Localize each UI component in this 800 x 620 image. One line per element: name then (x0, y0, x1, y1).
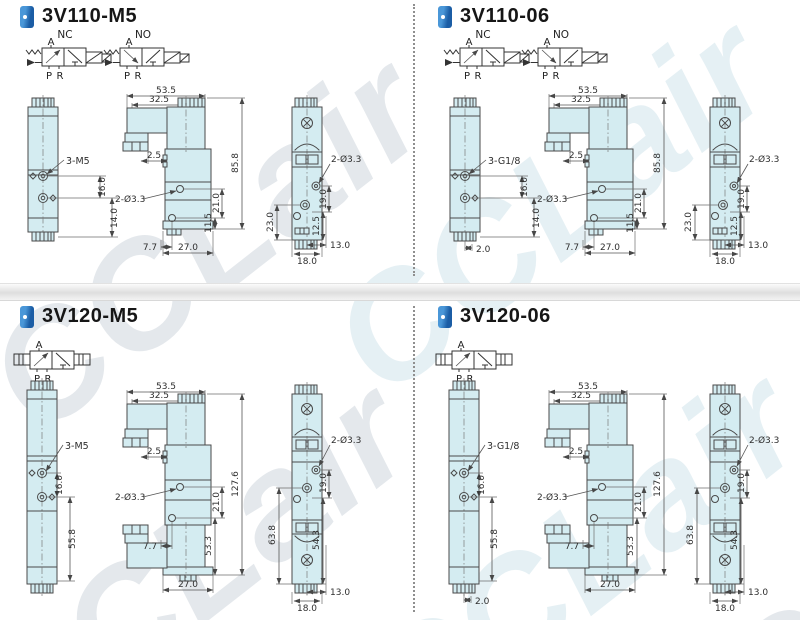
dim-hole-x: 7.7 (143, 243, 157, 253)
dimension-drawing: 3-G1/8 16.0 14.0 2.0 53.5 32.5 2.5 2-Ø3.… (418, 0, 800, 283)
dim-width-inner: 32.5 (149, 391, 169, 401)
dim-width-inner: 32.5 (571, 95, 591, 105)
dim-body-width: 27.0 (178, 580, 198, 590)
dim-side-bottom: 23.0 (684, 212, 694, 232)
dim-hole-bottom: 53.3 (626, 536, 636, 556)
dim-hole-spacing: 21.0 (634, 492, 644, 512)
side-view: 53.5 32.5 2.5 2-Ø3.3 7.7 27.0 127.6 21.0… (115, 382, 245, 593)
side-view: 53.5 32.5 2.5 2-Ø3.3 7.7 27.0 85.8 21.0 … (115, 86, 245, 256)
side-view: 53.5 32.5 2.5 2-Ø3.3 7.7 27.0 127.6 21.0… (537, 382, 667, 593)
dim-port-bottom: 55.8 (490, 529, 500, 549)
dim-height-total: 85.8 (653, 153, 663, 173)
holes-label: 2-Ø3.3 (749, 154, 779, 165)
datasheet-page: CCLair CCLair CCLair CCLair CCLair (0, 0, 800, 620)
end-view: 2-Ø3.3 23.0 19.0 12.5 13.0 18.0 (266, 95, 361, 267)
dim-height-total: 127.6 (653, 471, 663, 497)
dim-side-bottom: 63.8 (686, 525, 696, 545)
quadrant-3v110-06: 3V110-06 NC A P R NO A P R 3-G1/8 16.0 1… (418, 0, 800, 283)
dimension-drawing: 3-G1/8 16.0 55.8 2.0 53.5 32.5 2.5 2-Ø3.… (418, 300, 800, 620)
holes-label: 2-Ø3.3 (537, 492, 567, 503)
dim-port-bottom: 14.0 (110, 208, 120, 228)
front-view: 3-M5 16.0 55.8 (27, 378, 89, 596)
dim-hole-x: 7.7 (565, 243, 579, 253)
dim-hole-x: 7.7 (143, 542, 157, 552)
dim-side-spacing: 19.0 (319, 473, 329, 493)
thread-label: 3-G1/8 (487, 441, 519, 452)
front-view: 3-M5 16.0 14.0 (28, 95, 120, 241)
dim-side-spacing: 19.0 (737, 189, 747, 209)
dim-side-lower: 12.5 (312, 216, 322, 236)
holes-label: 2-Ø3.3 (331, 435, 361, 446)
dim-side-x: 13.0 (330, 588, 350, 598)
dim-side-spacing: 19.0 (737, 473, 747, 493)
holes-label: 2-Ø3.3 (115, 492, 145, 503)
dim-side-lower: 54.3 (312, 530, 322, 550)
thread-label: 3-M5 (65, 441, 89, 452)
side-view: 53.5 32.5 2.5 2-Ø3.3 7.7 27.0 85.8 21.0 … (537, 86, 667, 256)
thread-label: 3-M5 (66, 156, 90, 167)
dim-hole-bottom: 53.3 (204, 536, 214, 556)
dim-base-offset: 2.0 (475, 597, 490, 607)
quadrant-3v110-m5: 3V110-M5 NC A P R NO A P R 3-M5 16.0 14.… (0, 0, 415, 283)
dim-plug-offset: 2.5 (147, 447, 161, 457)
end-view: 2-Ø3.3 23.0 19.0 12.5 13.0 18.0 (684, 95, 779, 267)
dim-port-spacing: 16.0 (477, 475, 487, 495)
dim-port-spacing: 16.0 (55, 475, 65, 495)
dim-base-offset: 2.0 (476, 245, 491, 255)
end-view: 2-Ø3.3 63.8 19.0 54.3 13.0 18.0 (686, 382, 779, 614)
dim-hole-bottom: 11.5 (626, 213, 636, 233)
dim-body-width: 27.0 (600, 580, 620, 590)
front-view: 3-G1/8 16.0 14.0 2.0 (450, 95, 542, 255)
quadrant-3v120-m5: 3V120-M5 A P R 3-M5 16.0 55.8 53.5 32.5 … (0, 300, 415, 620)
dim-hole-bottom: 11.5 (204, 213, 214, 233)
dim-hole-spacing: 21.0 (634, 193, 644, 213)
dim-port-spacing: 16.0 (98, 177, 108, 197)
dim-side-x: 13.0 (330, 241, 350, 251)
holes-label: 2-Ø3.3 (749, 435, 779, 446)
dim-plug-offset: 2.5 (569, 447, 583, 457)
dim-side-spacing: 19.0 (319, 189, 329, 209)
dim-port-spacing: 16.0 (520, 177, 530, 197)
holes-label: 2-Ø3.3 (537, 194, 567, 205)
column-divider-top (413, 4, 415, 276)
dimension-drawing: 3-M5 16.0 55.8 53.5 32.5 2.5 2-Ø3.3 7.7 … (0, 300, 415, 620)
dim-hole-spacing: 21.0 (212, 492, 222, 512)
dim-side-width: 18.0 (297, 257, 317, 267)
front-view: 3-G1/8 16.0 55.8 2.0 (449, 378, 519, 607)
dim-port-bottom: 14.0 (532, 208, 542, 228)
dim-plug-offset: 2.5 (147, 151, 161, 161)
dim-height-total: 85.8 (231, 153, 241, 173)
dim-side-lower: 12.5 (730, 216, 740, 236)
end-view: 2-Ø3.3 63.8 19.0 54.3 13.0 18.0 (268, 382, 361, 614)
dim-hole-x: 7.7 (565, 542, 579, 552)
holes-label: 2-Ø3.3 (115, 194, 145, 205)
dim-side-x: 13.0 (748, 588, 768, 598)
dim-side-bottom: 63.8 (268, 525, 278, 545)
dim-port-bottom: 55.8 (68, 529, 78, 549)
dim-width-inner: 32.5 (149, 95, 169, 105)
dimension-drawing: 3-M5 16.0 14.0 53.5 32.5 2.5 2-Ø3.3 7.7 … (0, 0, 415, 283)
dim-body-width: 27.0 (600, 243, 620, 253)
holes-label: 2-Ø3.3 (331, 154, 361, 165)
dim-width-inner: 32.5 (571, 391, 591, 401)
dim-side-width: 18.0 (715, 257, 735, 267)
quadrant-3v120-06: 3V120-06 A P R 3-G1/8 16.0 55.8 2.0 53.5… (418, 300, 800, 620)
dim-side-x: 13.0 (748, 241, 768, 251)
thread-label: 3-G1/8 (488, 156, 520, 167)
dim-side-width: 18.0 (715, 604, 735, 614)
dim-body-width: 27.0 (178, 243, 198, 253)
dim-side-bottom: 23.0 (266, 212, 276, 232)
dim-hole-spacing: 21.0 (212, 193, 222, 213)
dim-height-total: 127.6 (231, 471, 241, 497)
dim-plug-offset: 2.5 (569, 151, 583, 161)
dim-side-lower: 54.3 (730, 530, 740, 550)
dim-side-width: 18.0 (297, 604, 317, 614)
section-divider-band (0, 283, 800, 301)
